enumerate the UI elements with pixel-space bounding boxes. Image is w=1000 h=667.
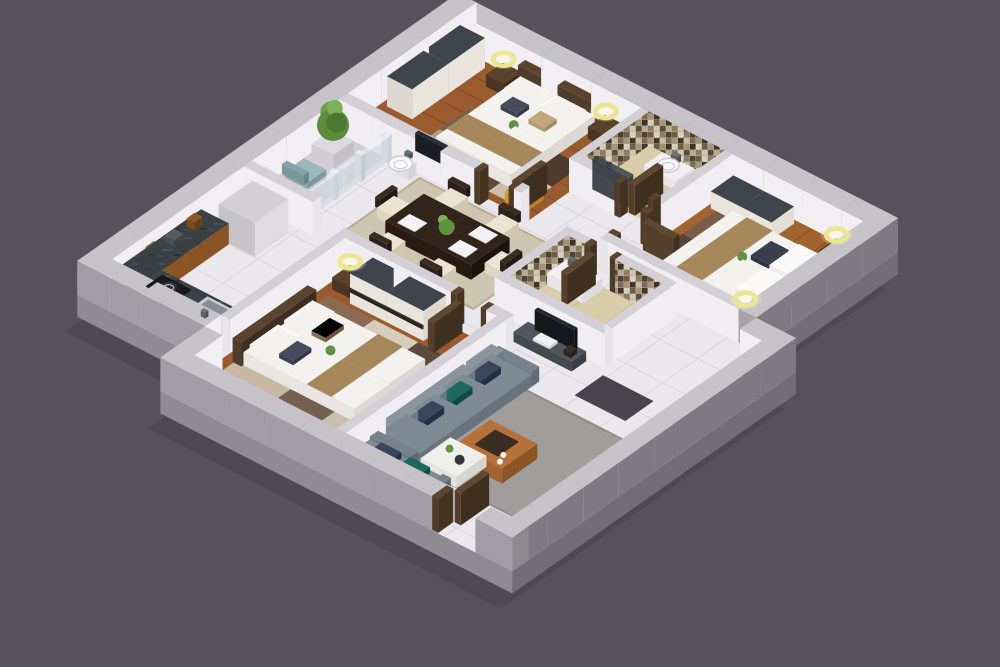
bedroom1-door-jamb-a (474, 162, 488, 205)
dining-centerpiece-a (439, 219, 455, 235)
apartment-isometric-floorplan (0, 0, 1000, 667)
floorplan-3d-render-page (0, 0, 1000, 667)
master-plant-decor (326, 345, 336, 355)
balcony-plant-foliage-c (326, 113, 346, 133)
coffee-table-cup-a (497, 459, 503, 465)
white-table-plant (446, 445, 454, 453)
white-table-bowl (455, 455, 465, 465)
coffee-table-cup-b (500, 452, 506, 458)
bedroom2-lamp-b (730, 289, 762, 309)
bedroom2-lamp-a (821, 225, 853, 245)
bath1-door-jamb-a (614, 176, 627, 218)
bedroom1-lamp-a (488, 49, 520, 69)
master-lamp (334, 252, 366, 272)
bedroom1-lamp-b (590, 101, 622, 121)
railing-post-b (355, 150, 365, 182)
dining-wash-basin (388, 156, 412, 171)
